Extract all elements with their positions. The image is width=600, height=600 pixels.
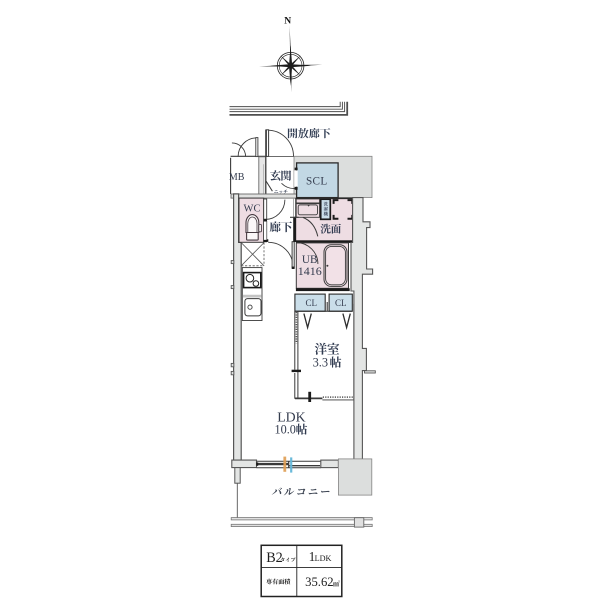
svg-text:N: N xyxy=(284,16,291,27)
svg-text:CL: CL xyxy=(335,298,347,308)
svg-text:35.62: 35.62 xyxy=(305,575,334,589)
svg-text:MB: MB xyxy=(229,172,245,183)
svg-text:CL: CL xyxy=(305,298,317,308)
svg-text:3.3: 3.3 xyxy=(313,356,329,370)
svg-text:SCL: SCL xyxy=(306,175,328,187)
svg-text:WC: WC xyxy=(244,203,261,214)
svg-text:B2: B2 xyxy=(266,550,283,566)
svg-text:1416: 1416 xyxy=(298,264,322,278)
svg-text:LDK: LDK xyxy=(315,554,332,563)
svg-text:10.0: 10.0 xyxy=(275,423,296,437)
